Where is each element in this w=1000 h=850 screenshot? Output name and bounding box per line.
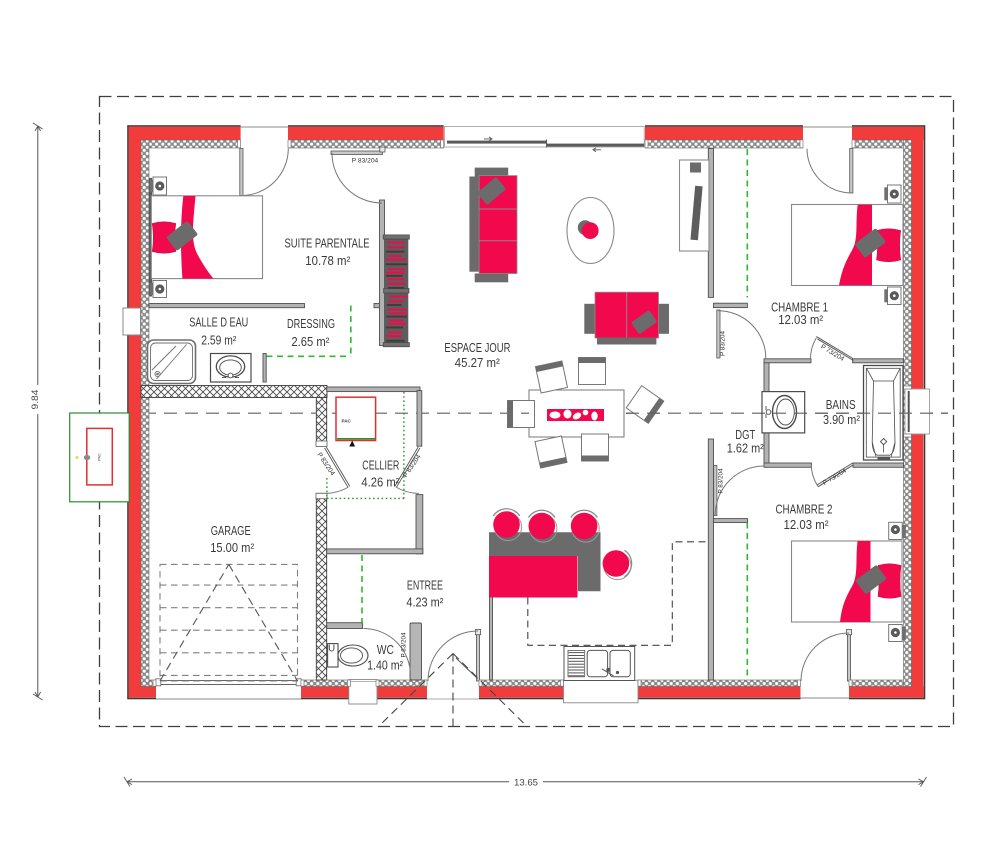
svg-text:13.65: 13.65 xyxy=(514,777,538,787)
svg-text:9.84: 9.84 xyxy=(30,390,40,410)
svg-text:PAC: PAC xyxy=(98,453,102,461)
svg-text:SALLE D EAU: SALLE D EAU xyxy=(189,315,248,330)
svg-text:4.26 m²: 4.26 m² xyxy=(361,475,400,490)
svg-text:12.03 m²: 12.03 m² xyxy=(784,517,830,532)
svg-text:ESPACE JOUR: ESPACE JOUR xyxy=(444,340,510,355)
svg-text:WC: WC xyxy=(377,642,394,657)
svg-text:1.62 m²: 1.62 m² xyxy=(727,441,765,456)
svg-text:BAINS: BAINS xyxy=(826,397,856,412)
svg-text:CELLIER: CELLIER xyxy=(362,458,399,473)
svg-text:45.27 m²: 45.27 m² xyxy=(455,355,501,370)
svg-text:P 83/204: P 83/204 xyxy=(720,331,727,356)
svg-text:1.40 m²: 1.40 m² xyxy=(367,658,404,673)
svg-text:PAC: PAC xyxy=(342,419,352,424)
svg-text:15.00 m²: 15.00 m² xyxy=(210,540,255,555)
svg-text:ENTREE: ENTREE xyxy=(407,577,443,592)
svg-text:4.23 m²: 4.23 m² xyxy=(406,594,444,609)
svg-text:P 83/204: P 83/204 xyxy=(401,632,408,657)
svg-text:3.90 m²: 3.90 m² xyxy=(823,412,861,427)
svg-text:2.59 m²: 2.59 m² xyxy=(201,333,237,348)
svg-text:DRESSING: DRESSING xyxy=(287,316,335,331)
svg-text:10.78 m²: 10.78 m² xyxy=(305,253,351,268)
svg-text:CHAMBRE 2: CHAMBRE 2 xyxy=(776,501,833,516)
svg-text:GARAGE: GARAGE xyxy=(211,523,251,538)
svg-text:P 83/204: P 83/204 xyxy=(718,468,725,493)
svg-text:P 83/204: P 83/204 xyxy=(352,158,379,165)
svg-text:2.65 m²: 2.65 m² xyxy=(291,334,330,349)
svg-text:SUITE PARENTALE: SUITE PARENTALE xyxy=(285,235,370,250)
svg-text:12.03 m²: 12.03 m² xyxy=(778,312,824,327)
